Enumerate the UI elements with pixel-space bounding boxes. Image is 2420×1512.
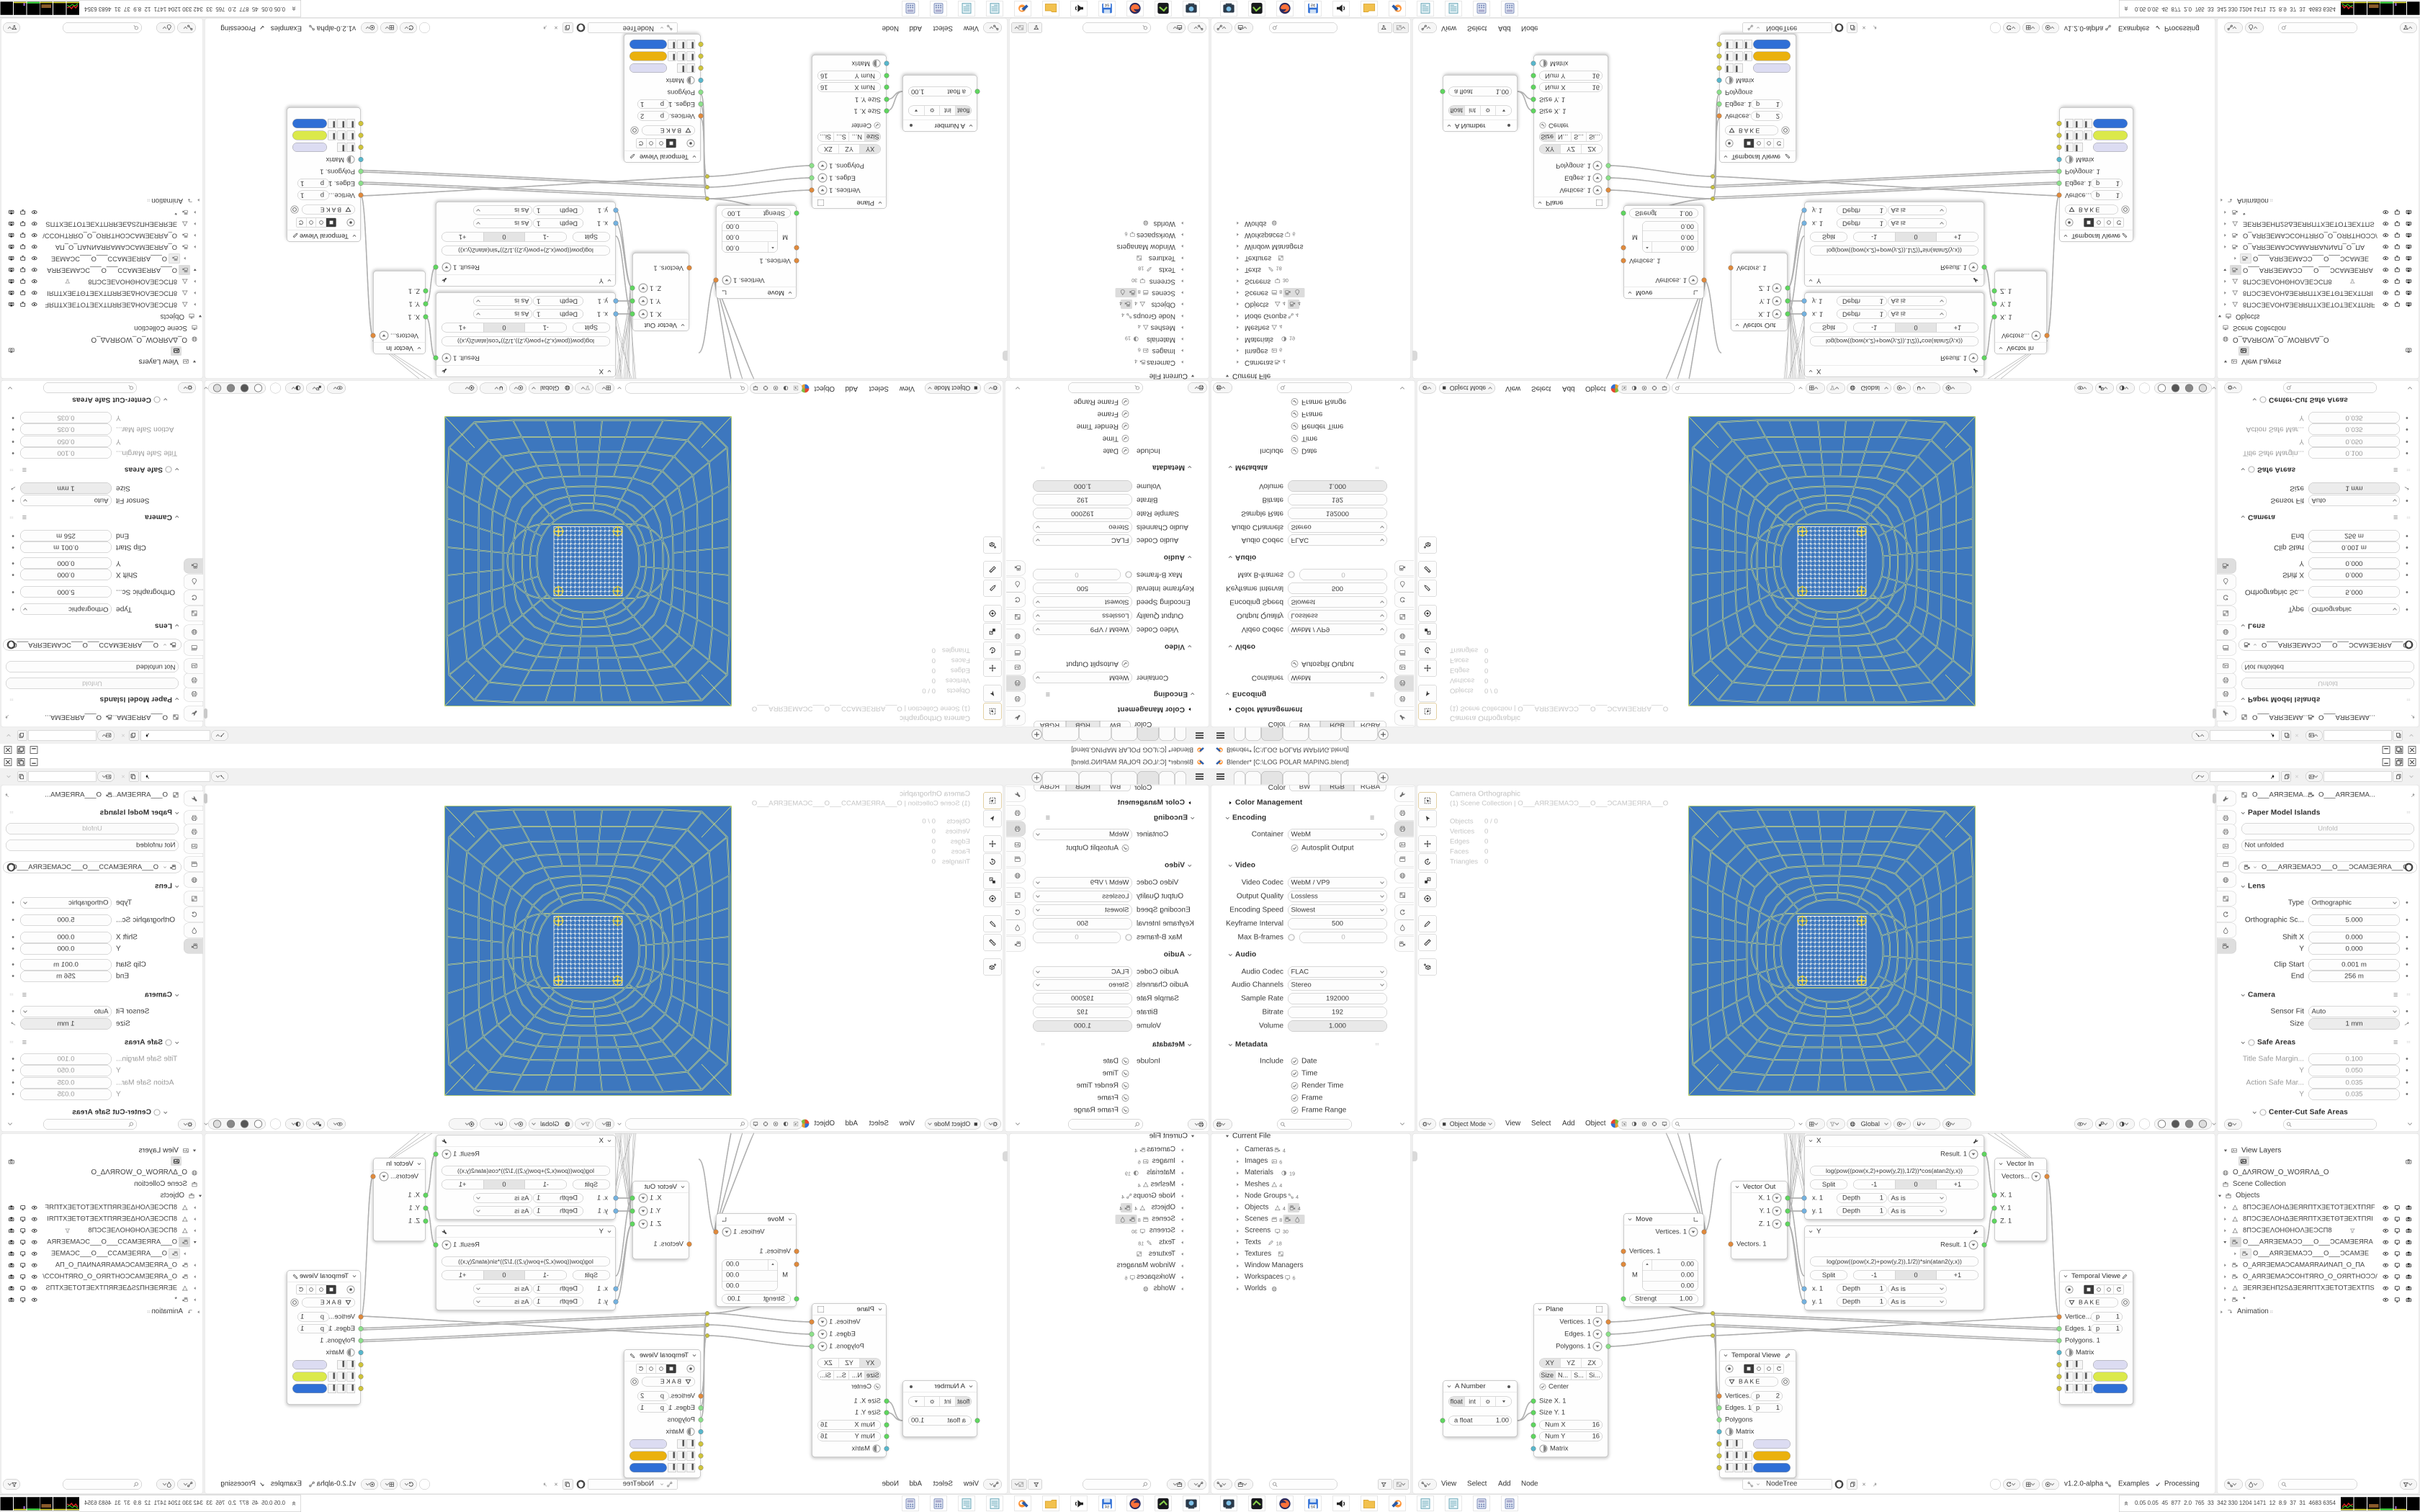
svg-text:64: 64 — [1311, 3, 1315, 7]
svg-text:64: 64 — [1105, 1505, 1109, 1509]
svg-text:64: 64 — [1311, 1505, 1315, 1509]
svg-text:64: 64 — [1105, 3, 1109, 7]
